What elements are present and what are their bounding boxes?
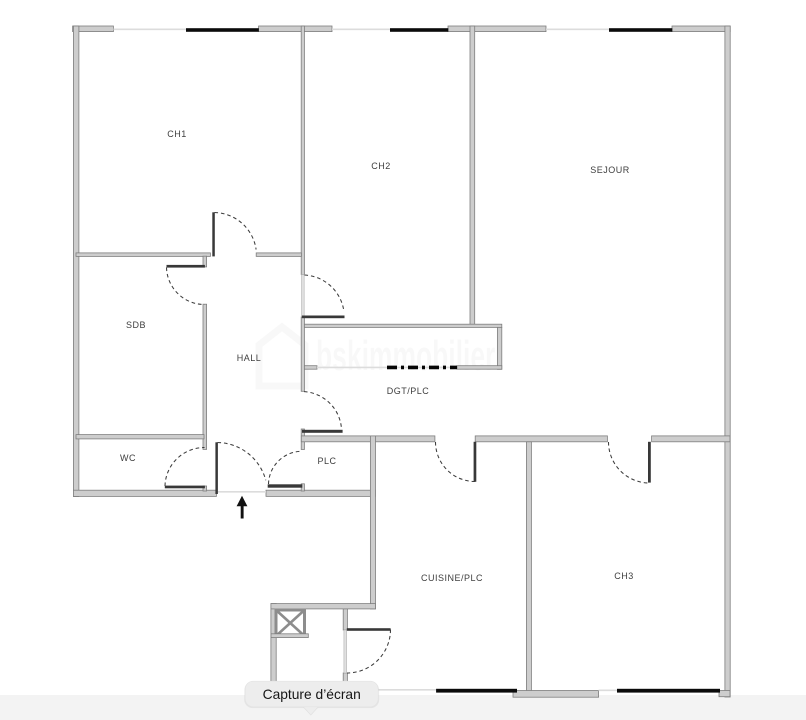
- svg-text:Capture d’écran: Capture d’écran: [263, 687, 361, 702]
- svg-text:HALL: HALL: [237, 353, 262, 363]
- svg-text:CUISINE/PLC: CUISINE/PLC: [421, 573, 483, 583]
- svg-text:WC: WC: [120, 453, 136, 463]
- svg-text:SEJOUR: SEJOUR: [590, 165, 630, 175]
- svg-text:CH1: CH1: [167, 129, 187, 139]
- svg-text:DGT/PLC: DGT/PLC: [387, 386, 430, 396]
- svg-text:PLC: PLC: [317, 456, 336, 466]
- svg-text:CH3: CH3: [614, 571, 634, 581]
- svg-text:CH2: CH2: [371, 161, 391, 171]
- svg-text:SDB: SDB: [126, 320, 146, 330]
- svg-text:bskimmobilier: bskimmobilier: [316, 333, 496, 380]
